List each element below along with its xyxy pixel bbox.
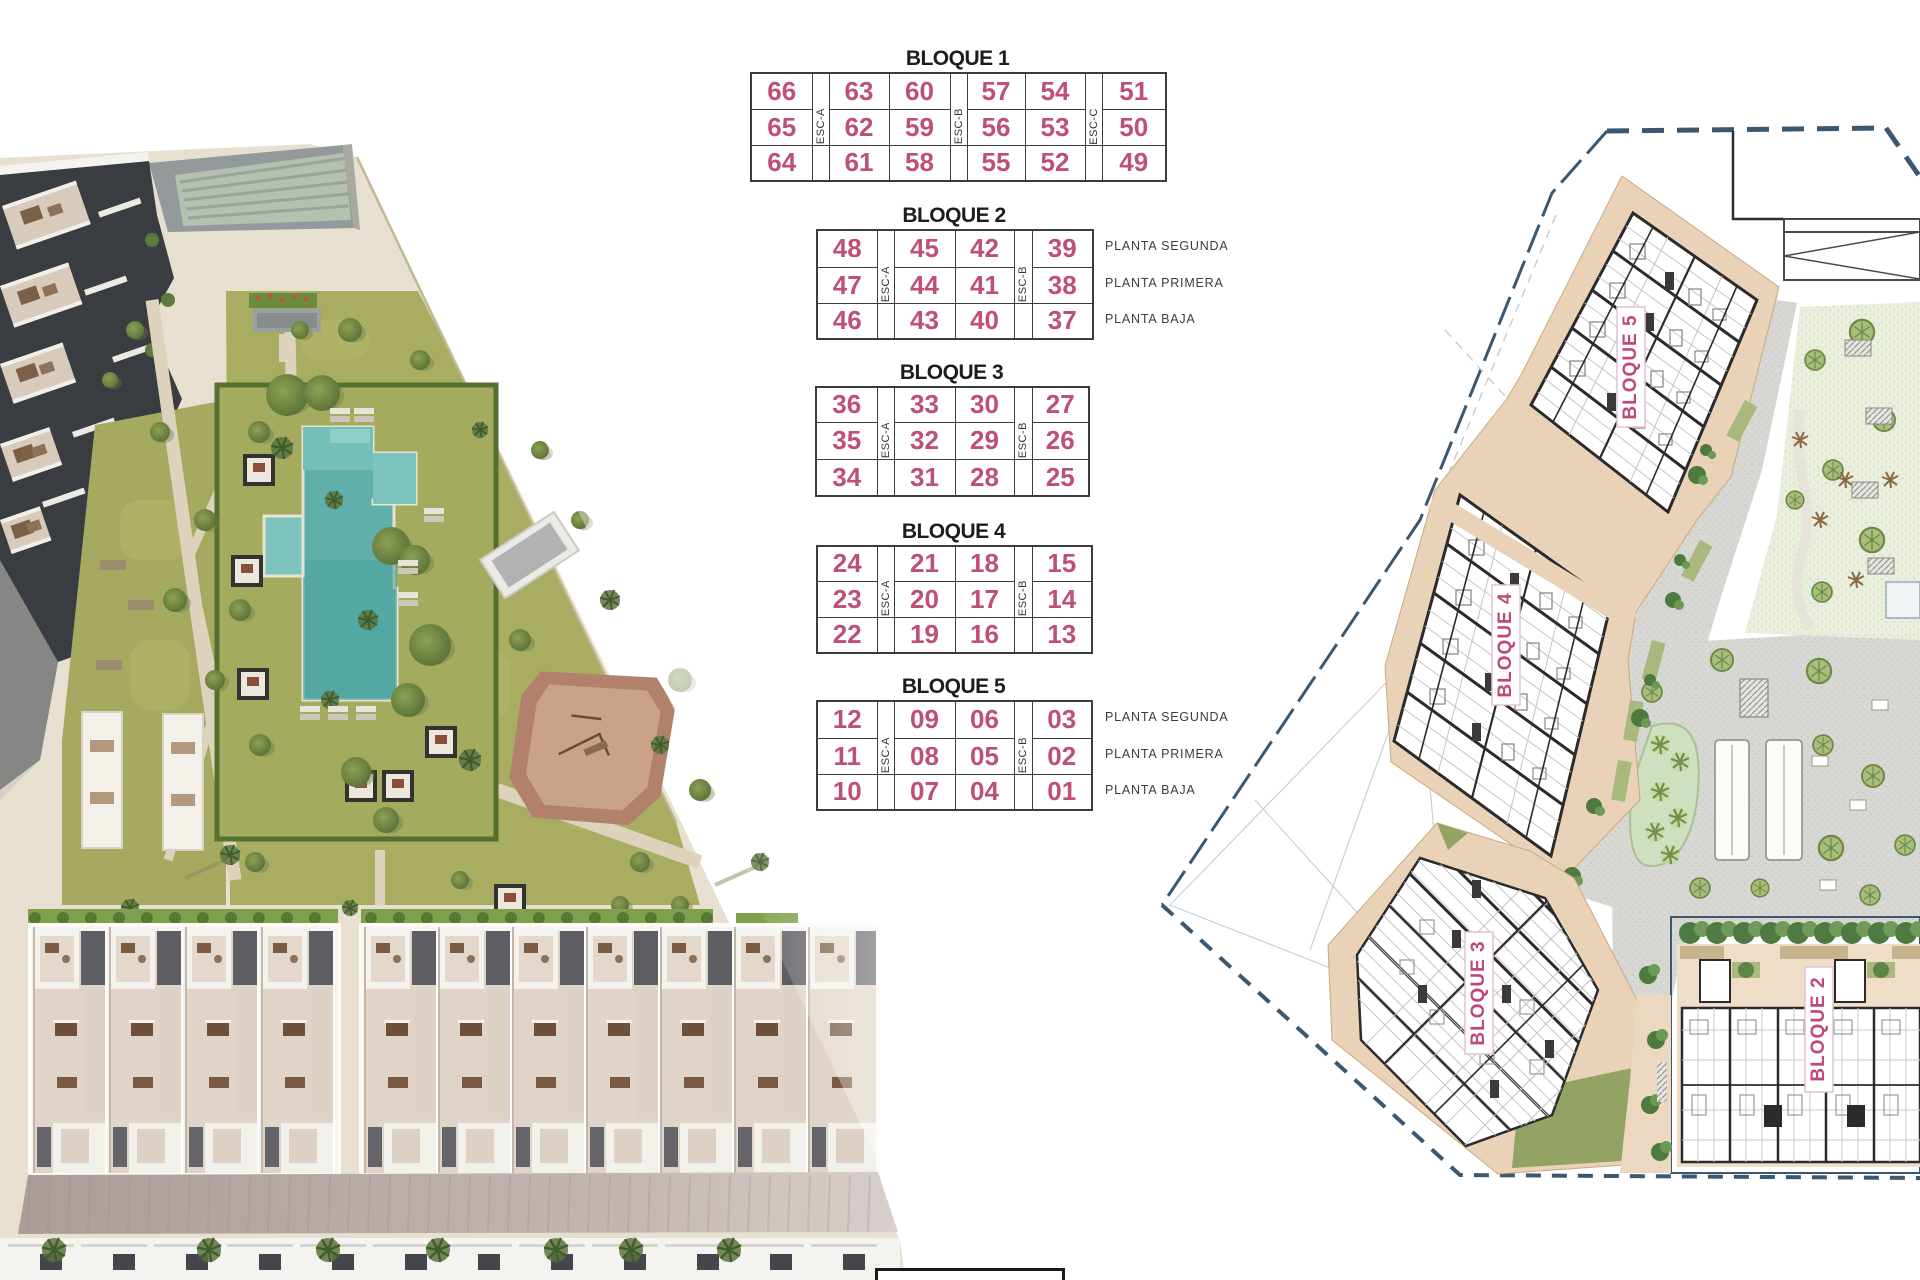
svg-text:BLOQUE 5: BLOQUE 5 — [1620, 314, 1641, 419]
svg-text:BLOQUE 3: BLOQUE 3 — [1468, 940, 1489, 1045]
svg-text:BLOQUE 4: BLOQUE 4 — [1495, 592, 1516, 697]
svg-text:BLOQUE 2: BLOQUE 2 — [1808, 976, 1829, 1081]
